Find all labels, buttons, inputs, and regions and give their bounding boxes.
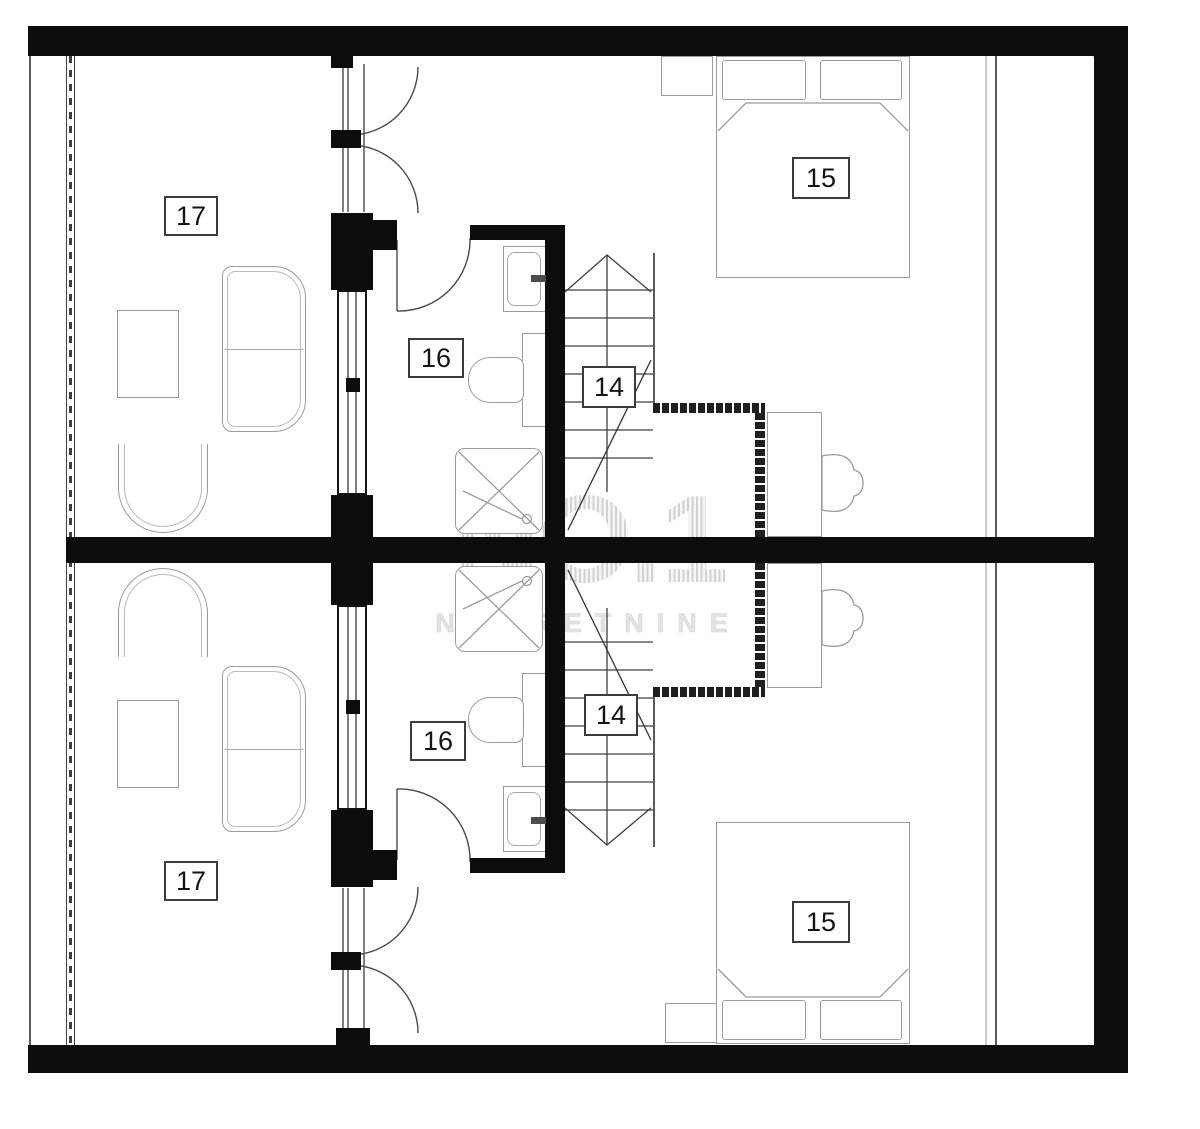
wall-bath-upper-right bbox=[545, 225, 565, 537]
room-label-bedroom-upper-text: 15 bbox=[806, 163, 836, 194]
plan-linework bbox=[0, 0, 1200, 1129]
room-label-bedroom-lower-text: 15 bbox=[806, 907, 836, 938]
bed-detail-upper bbox=[718, 103, 908, 131]
faucet-lower bbox=[531, 817, 546, 824]
window-latch-upper bbox=[346, 378, 360, 392]
room-label-stair-lower: 14 bbox=[584, 694, 638, 736]
room-label-bedroom-upper: 15 bbox=[792, 157, 850, 199]
door-pillar-lower bbox=[331, 952, 361, 970]
stair-guard-lower-h bbox=[653, 687, 765, 697]
stairs-upper-arrow bbox=[565, 255, 651, 292]
room-label-bath-upper-text: 16 bbox=[421, 343, 451, 374]
door-arc-lower-1 bbox=[350, 887, 418, 955]
bed-detail-lower bbox=[718, 969, 908, 997]
door-arc-upper-2 bbox=[350, 145, 418, 213]
wall-bath-lower-bottom bbox=[470, 858, 565, 873]
wall-divider-lower-mid bbox=[331, 810, 373, 887]
stair-guard-upper-v bbox=[755, 413, 765, 537]
room-label-stair-lower-text: 14 bbox=[596, 700, 626, 731]
room-label-living-upper: 17 bbox=[164, 196, 218, 236]
room-label-living-lower: 17 bbox=[164, 861, 218, 901]
wall-divider-lower-mid-ext bbox=[373, 850, 397, 880]
room-label-bath-lower: 16 bbox=[410, 721, 466, 761]
shower-detail-lower bbox=[459, 570, 539, 648]
desk-chair-lower bbox=[822, 590, 863, 647]
room-label-stair-upper-text: 14 bbox=[594, 372, 624, 403]
door-pillar-upper bbox=[331, 130, 361, 148]
wall-central bbox=[66, 537, 1128, 563]
stair-guard-lower-v bbox=[755, 563, 765, 687]
desk-chair-upper bbox=[822, 455, 863, 512]
floor-plan: NO.1 NEKRETNINE bbox=[0, 0, 1200, 1129]
wall-bottom bbox=[28, 1045, 1128, 1073]
wall-bath-lower-right bbox=[545, 563, 565, 873]
door-arc-lower-2 bbox=[350, 965, 418, 1033]
room-label-living-upper-text: 17 bbox=[176, 201, 206, 232]
wall-divider-upper-mid bbox=[331, 213, 373, 290]
interior-window-upper bbox=[337, 290, 367, 495]
window-latch-lower bbox=[346, 700, 360, 714]
room-label-bedroom-lower: 15 bbox=[792, 901, 850, 943]
faucet-upper bbox=[531, 275, 546, 282]
room-label-stair-upper: 14 bbox=[582, 366, 636, 408]
bath-door-upper bbox=[397, 238, 470, 311]
room-label-bath-upper: 16 bbox=[408, 338, 464, 378]
stairs-lower-arrow bbox=[565, 808, 651, 845]
wall-divider-upper-mid-ext bbox=[373, 220, 397, 250]
shower-detail-upper bbox=[459, 452, 539, 530]
door-arc-upper-1 bbox=[350, 67, 418, 135]
wall-divider-upper-bottom bbox=[331, 495, 373, 537]
room-label-bath-lower-text: 16 bbox=[423, 726, 453, 757]
wall-divider-lower-top bbox=[331, 563, 373, 605]
bath-door-lower bbox=[397, 789, 470, 862]
wall-divider-lower-stub bbox=[336, 1028, 370, 1045]
stair-guard-upper-h bbox=[653, 403, 765, 413]
wall-divider-upper-stub bbox=[331, 56, 353, 68]
wall-top bbox=[28, 26, 1128, 56]
room-label-living-lower-text: 17 bbox=[176, 866, 206, 897]
